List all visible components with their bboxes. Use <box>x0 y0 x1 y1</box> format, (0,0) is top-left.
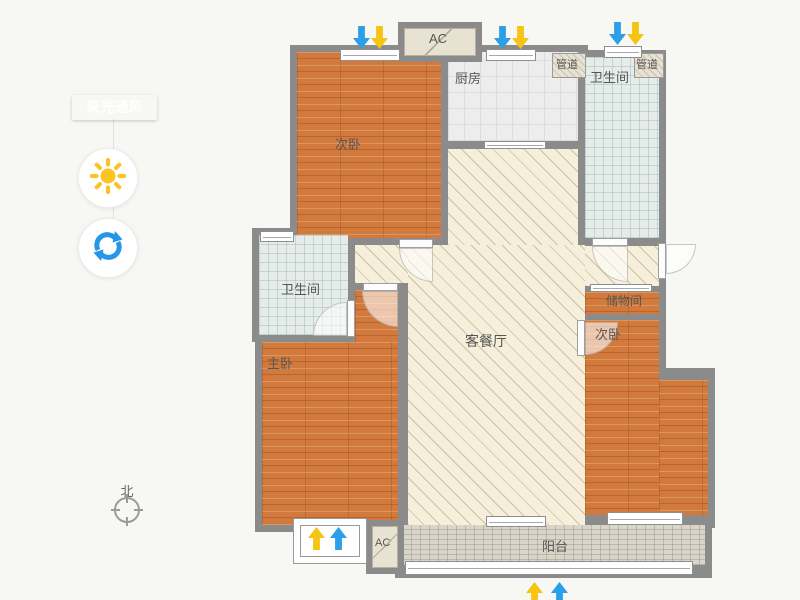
room-label: 管道 <box>556 56 578 72</box>
room-label: 次卧 <box>335 134 361 153</box>
window <box>260 231 294 242</box>
window <box>340 49 400 61</box>
floor-living-upper <box>448 149 578 245</box>
window <box>484 141 546 149</box>
window <box>405 561 693 575</box>
up-airflow-arrow-yellow <box>526 582 543 600</box>
floorplan-viewer: 采光通风 <box>0 0 800 600</box>
room-label: 主卧 <box>267 353 293 372</box>
room-label: AC <box>375 537 390 549</box>
bay-window-inner <box>300 525 360 557</box>
room-label: AC <box>429 31 447 46</box>
entry-door-swing <box>666 244 696 274</box>
floor-bedroom-top-left <box>297 52 441 238</box>
window <box>590 284 652 292</box>
bathroom-left-door <box>347 300 355 337</box>
master-bedroom-door <box>363 283 398 291</box>
room-label: 阳台 <box>542 536 568 555</box>
room-label: 厨房 <box>455 68 481 87</box>
down-airflow-arrow-yellow <box>627 22 644 45</box>
bedroom-top-left-door <box>399 239 433 248</box>
room-label: 卫生间 <box>590 67 629 86</box>
floor-living-main <box>408 245 585 525</box>
room-label: 储物间 <box>606 292 642 309</box>
entry-door <box>658 243 666 279</box>
floorplan-canvas[interactable]: 次卧厨房管道卫生间管道卫生间客餐厅主卧储物间次卧阳台ACAC <box>0 0 800 600</box>
window <box>486 516 546 527</box>
bathroom-right-door <box>592 238 628 246</box>
bedroom-right-door <box>577 320 585 356</box>
room-label: 管道 <box>636 56 658 72</box>
room-label: 次卧 <box>595 324 621 343</box>
window <box>486 49 536 61</box>
window <box>607 512 683 525</box>
room-label: 客餐厅 <box>465 331 507 351</box>
room-label: 卫生间 <box>281 279 320 298</box>
floor-bedroom-right-ext <box>659 380 708 515</box>
up-airflow-arrow-blue <box>551 582 568 600</box>
down-airflow-arrow-blue <box>609 22 626 45</box>
